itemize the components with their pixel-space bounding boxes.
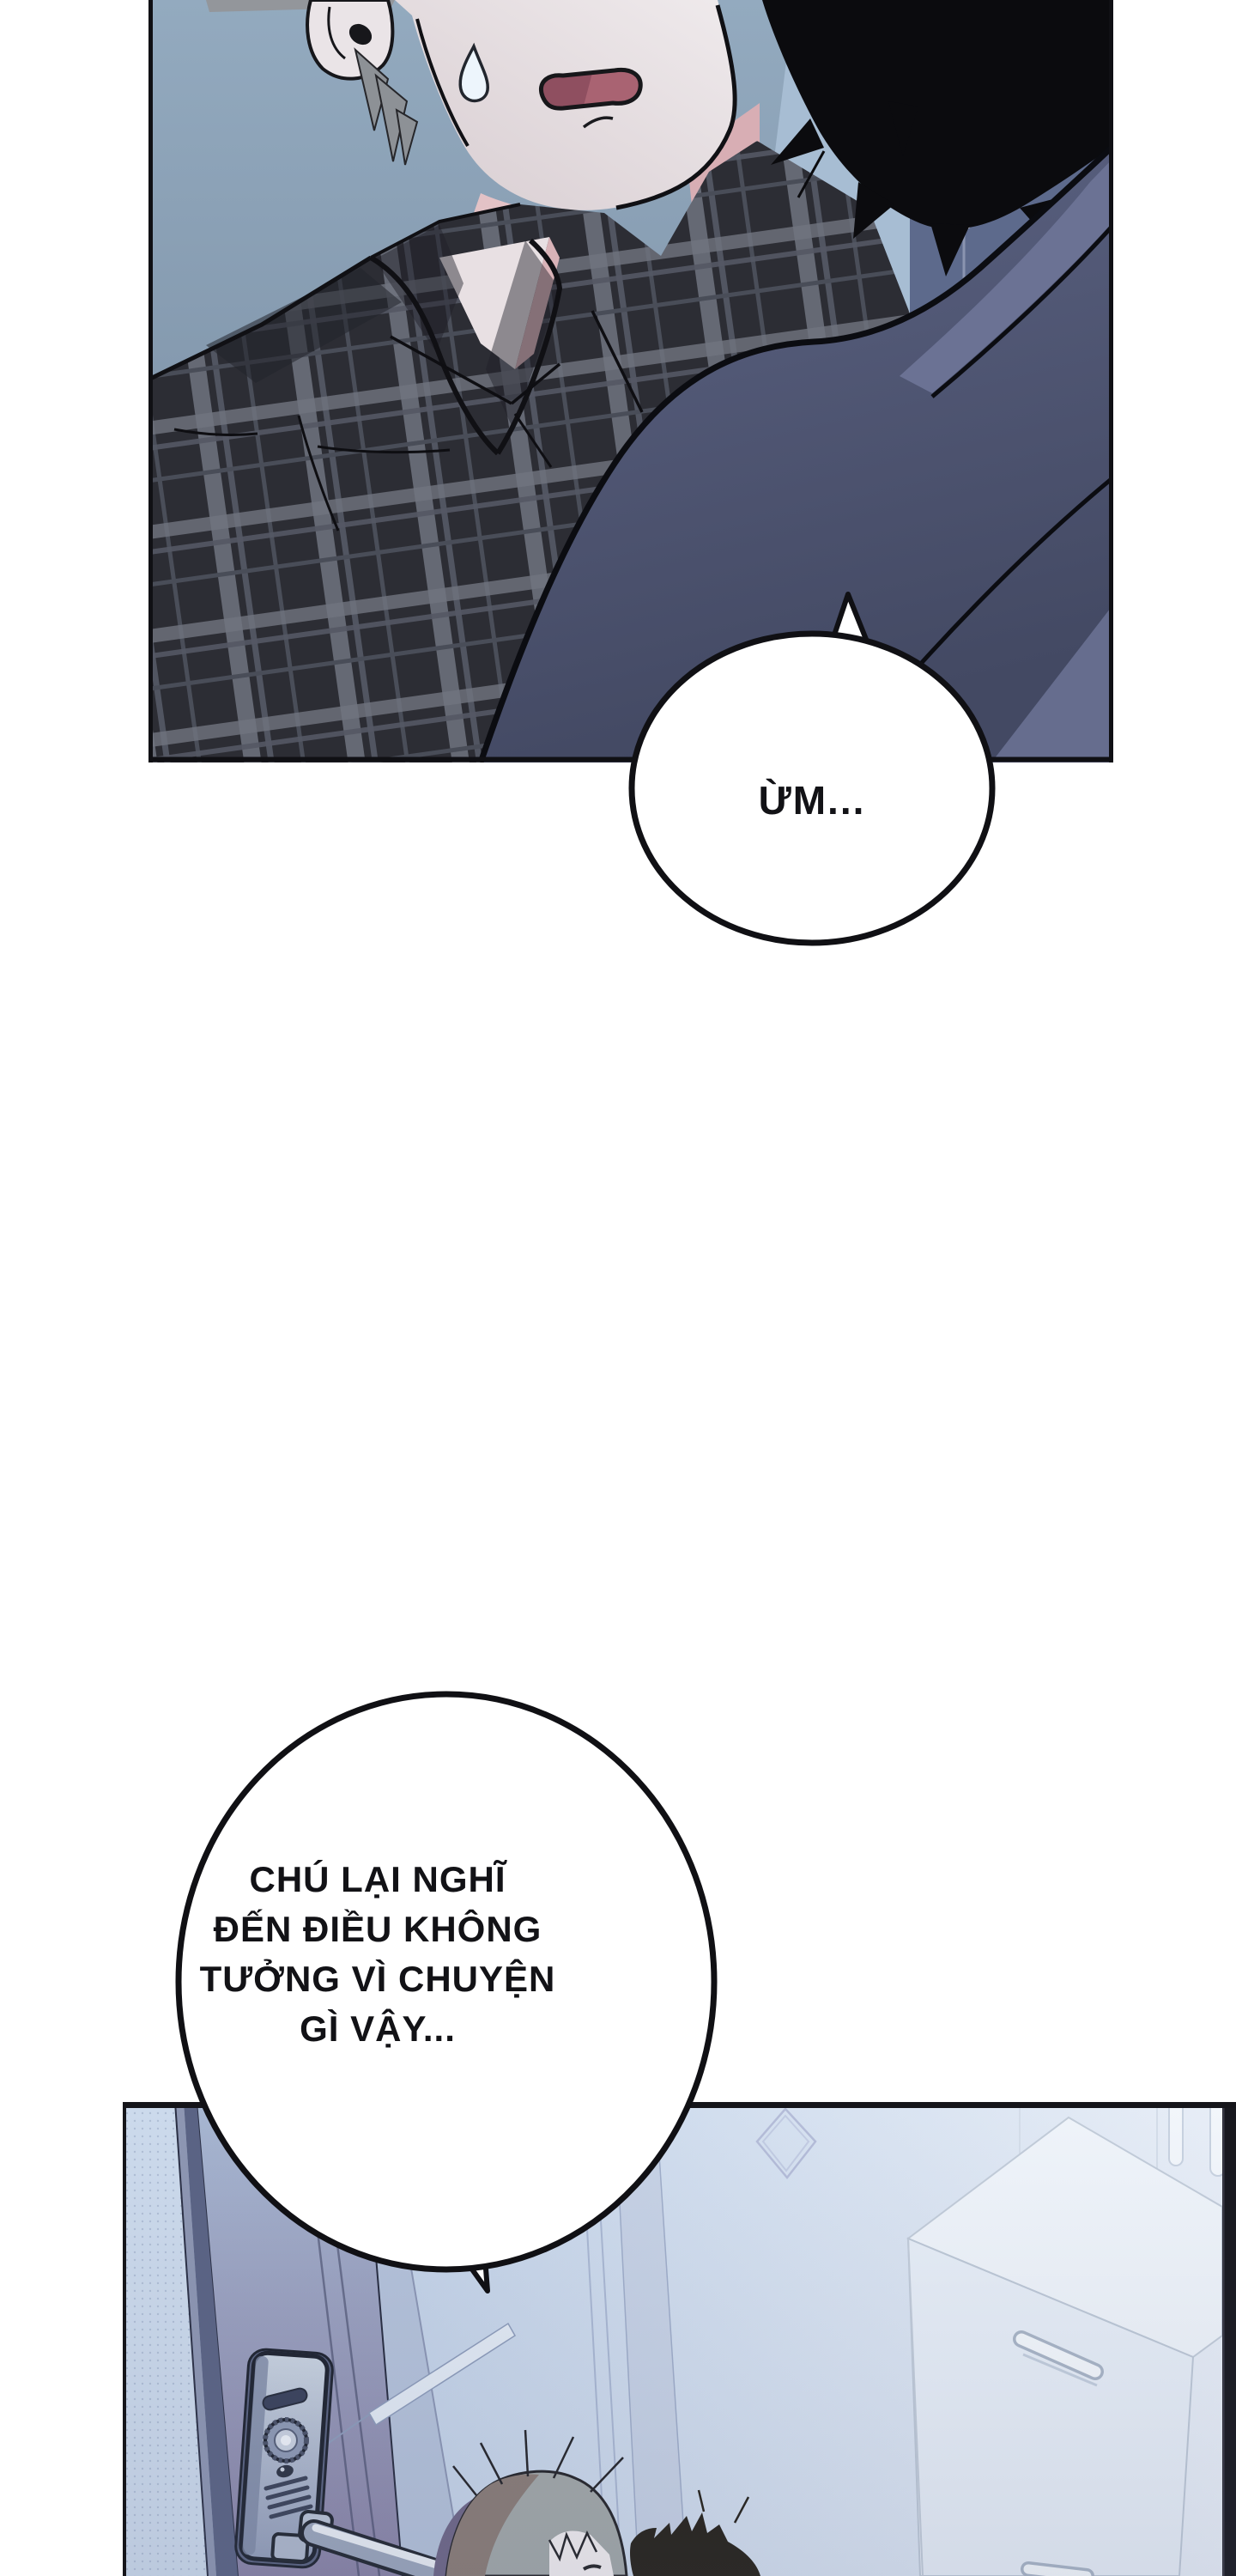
bubble-question-line: CHÚ LẠI NGHĨ bbox=[180, 1855, 575, 1905]
comic-page: ỪM... CHÚ LẠI NGHĨ ĐẾN ĐIỀU KHÔNG TƯỞNG … bbox=[0, 0, 1236, 2576]
bubble-um-text: ỪM... bbox=[632, 775, 992, 825]
bubble-question-line: TƯỞNG VÌ CHUYỆN bbox=[180, 1954, 575, 2004]
bubble-question-text: CHÚ LẠI NGHĨ ĐẾN ĐIỀU KHÔNG TƯỞNG VÌ CHU… bbox=[180, 1855, 575, 2054]
speech-bubble-um bbox=[592, 567, 1039, 970]
open-mouth bbox=[541, 70, 640, 108]
bubble-question-line: ĐẾN ĐIỀU KHÔNG bbox=[180, 1905, 575, 1954]
ear bbox=[307, 0, 392, 79]
bubble-question-line: GÌ VẬY... bbox=[180, 2004, 575, 2054]
